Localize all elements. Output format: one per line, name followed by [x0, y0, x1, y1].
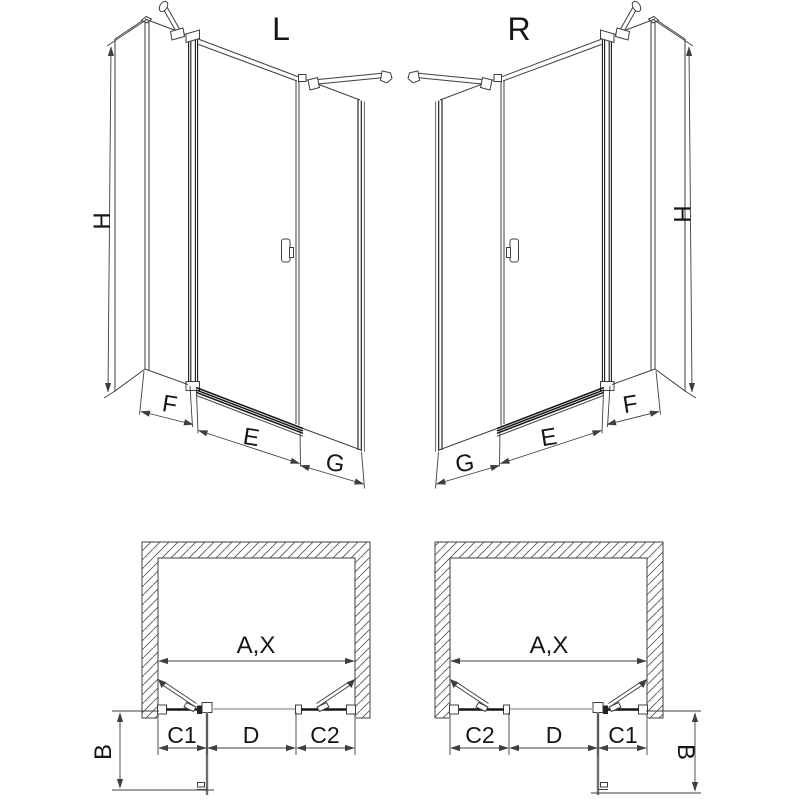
segment-label-c2-right: C2: [465, 722, 494, 748]
dimension-depth-left: [112, 711, 214, 790]
segment-label-c1-left: C1: [167, 722, 196, 748]
width-label-f-right: F: [621, 390, 640, 419]
opening-label-right: A,X: [530, 632, 569, 659]
plan-view-left: A,X C1 D C2 B: [90, 542, 370, 795]
perspective-geometry-left: [104, 0, 392, 488]
width-label-g-left: G: [324, 449, 347, 479]
height-label-right: H: [668, 205, 695, 222]
perspective-view-left: L H F E G: [89, 0, 392, 488]
width-label-e-left: E: [241, 423, 261, 452]
depth-label-left: B: [90, 744, 117, 760]
shower-door-technical-drawing: L H F E G R H G E F A,X C1 D C2 B: [0, 0, 800, 800]
plan-view-right: A,X C2 D C1 B: [435, 542, 701, 795]
height-label-left: H: [89, 212, 116, 229]
perspective-geometry-right: [408, 0, 696, 488]
segment-label-c1-right: C1: [608, 722, 637, 748]
wall-section-right: [435, 542, 663, 718]
segment-label-c2-left: C2: [310, 722, 339, 748]
variant-label-left: L: [272, 11, 290, 47]
segment-label-d-left: D: [243, 722, 260, 748]
wall-section-left: [142, 542, 370, 718]
variant-label-right: R: [507, 11, 530, 47]
segment-label-d-right: D: [546, 722, 563, 748]
width-label-e-right: E: [539, 423, 559, 452]
depth-label-right: B: [672, 744, 699, 760]
opening-label-left: A,X: [237, 632, 276, 659]
perspective-view-right: R H G E F: [408, 0, 696, 488]
width-label-g-right: G: [453, 449, 476, 479]
drawing-canvas: L H F E G R H G E F A,X C1 D C2 B: [0, 0, 800, 800]
width-label-f-left: F: [160, 390, 179, 419]
